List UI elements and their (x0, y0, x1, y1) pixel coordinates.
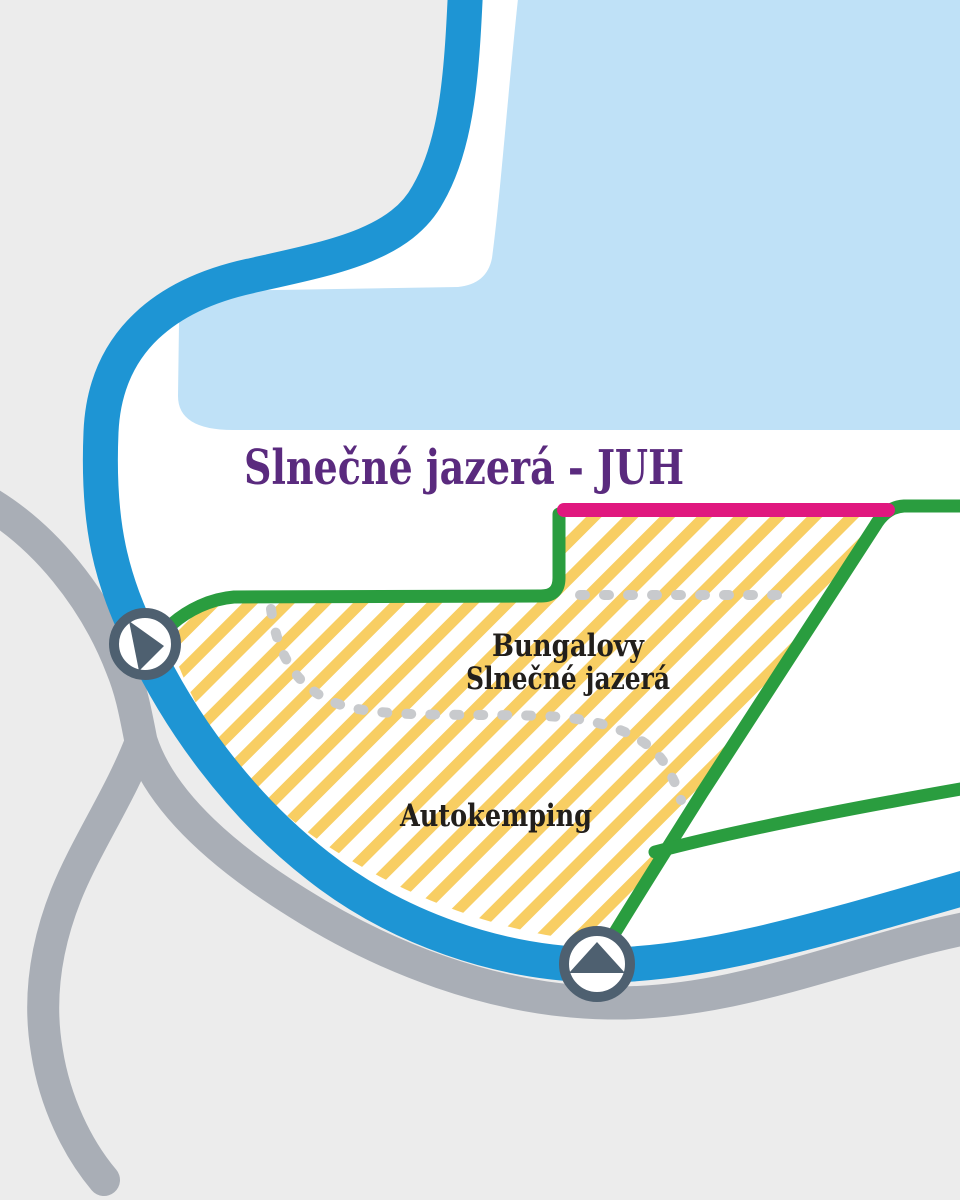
label-bungalows-line2: Slnečné jazerá (466, 661, 670, 697)
west-entrance-marker[interactable] (114, 613, 176, 675)
south-entrance-marker[interactable] (564, 931, 630, 997)
map-title: Slnečné jazerá - JUH (244, 440, 684, 496)
label-bungalows-line1: Bungalovy (492, 628, 645, 664)
label-autokemping: Autokemping (399, 798, 592, 834)
map-svg: Slnečné jazerá - JUH Bungalovy Slnečné j… (0, 0, 960, 1200)
map-canvas: Slnečné jazerá - JUH Bungalovy Slnečné j… (0, 0, 960, 1200)
